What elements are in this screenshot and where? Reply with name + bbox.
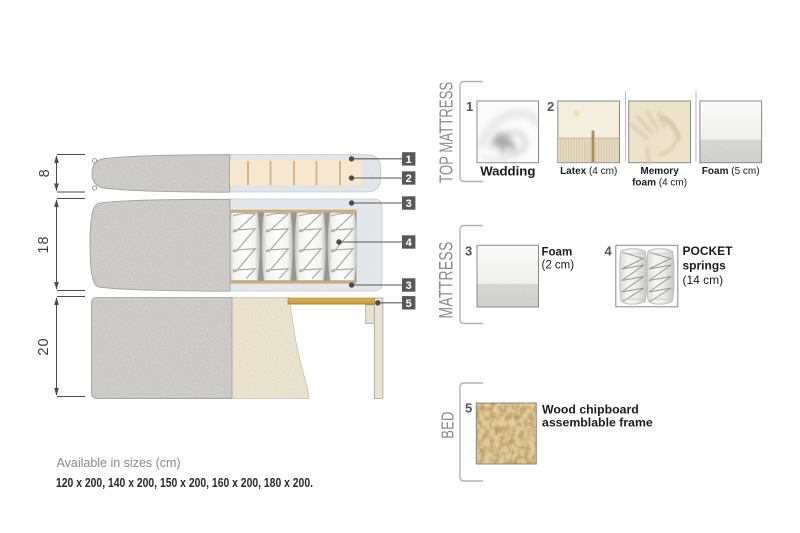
svg-text:(2 cm): (2 cm): [542, 259, 575, 271]
svg-text:foam (4 cm): foam (4 cm): [632, 177, 687, 188]
svg-text:5: 5: [465, 401, 472, 416]
svg-text:1: 1: [406, 154, 412, 166]
svg-text:Foam: Foam: [542, 246, 573, 258]
svg-text:3: 3: [465, 244, 472, 259]
svg-text:18: 18: [36, 235, 52, 253]
svg-text:Foam (5 cm): Foam (5 cm): [702, 166, 760, 177]
svg-text:Wood chipboard: Wood chipboard: [542, 402, 639, 416]
svg-text:MATTRESS: MATTRESS: [436, 241, 458, 318]
svg-text:BED: BED: [439, 411, 458, 438]
svg-text:Memory: Memory: [640, 166, 679, 177]
svg-text:2: 2: [406, 173, 412, 185]
svg-text:3: 3: [406, 198, 412, 210]
svg-text:POCKET: POCKET: [683, 244, 734, 258]
svg-text:2: 2: [547, 99, 554, 114]
svg-text:TOP MATTRESS: TOP MATTRESS: [438, 82, 457, 183]
svg-text:Latex (4 cm): Latex (4 cm): [560, 166, 617, 177]
svg-text:8: 8: [37, 169, 53, 177]
svg-text:120 x 200, 140 x 200, 150 x 20: 120 x 200, 140 x 200, 150 x 200, 160 x 2…: [56, 476, 313, 490]
svg-text:5: 5: [406, 298, 412, 310]
svg-text:1: 1: [466, 99, 473, 114]
svg-text:4: 4: [406, 237, 413, 249]
svg-text:4: 4: [605, 244, 613, 259]
svg-text:20: 20: [36, 337, 52, 355]
svg-text:assemblable frame: assemblable frame: [542, 416, 653, 430]
svg-text:Available in sizes (cm): Available in sizes (cm): [57, 456, 181, 470]
svg-text:3: 3: [406, 280, 412, 292]
svg-text:springs: springs: [683, 259, 727, 273]
svg-text:(14 cm): (14 cm): [683, 273, 724, 287]
svg-text:Wadding: Wadding: [480, 164, 535, 179]
